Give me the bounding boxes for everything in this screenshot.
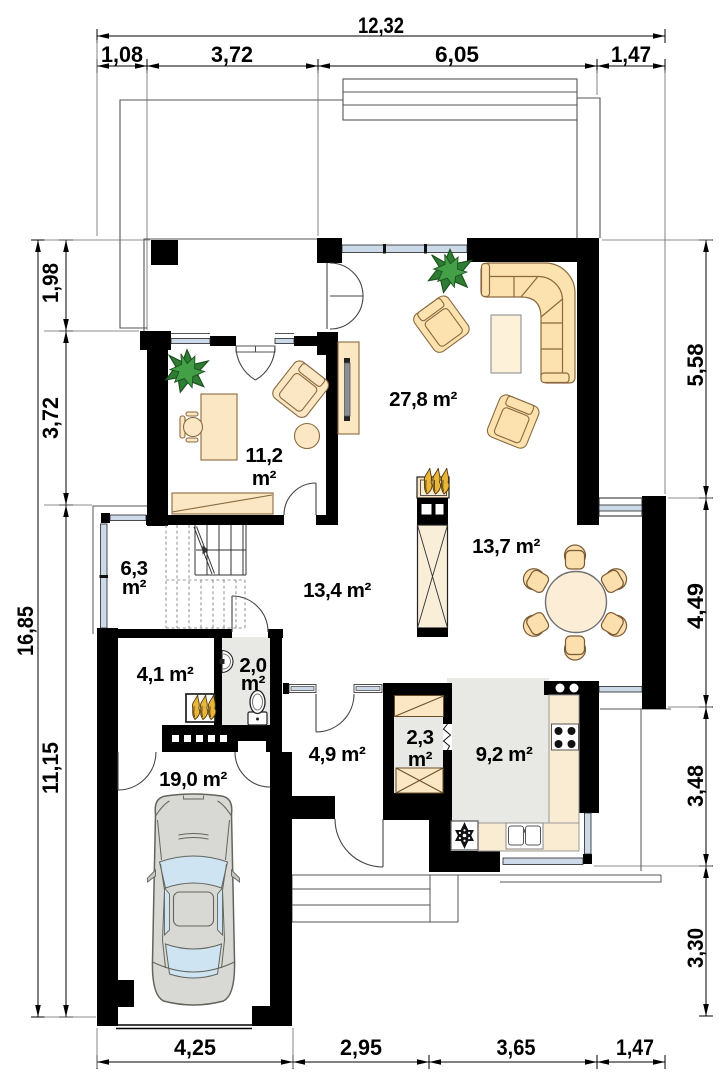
svg-text:m²: m² bbox=[408, 748, 433, 771]
svg-text:m²: m² bbox=[122, 576, 147, 599]
svg-text:4,49: 4,49 bbox=[683, 583, 708, 629]
svg-text:13,7 m²: 13,7 m² bbox=[472, 535, 540, 558]
svg-text:4,9 m²: 4,9 m² bbox=[309, 743, 366, 766]
svg-text:1,47: 1,47 bbox=[616, 1035, 654, 1060]
svg-text:19,0 m²: 19,0 m² bbox=[159, 768, 227, 791]
svg-text:13,4 m²: 13,4 m² bbox=[303, 579, 371, 602]
svg-text:2,95: 2,95 bbox=[340, 1035, 382, 1060]
svg-text:3,72: 3,72 bbox=[211, 42, 253, 67]
svg-text:m²: m² bbox=[241, 672, 266, 695]
svg-text:27,8 m²: 27,8 m² bbox=[389, 388, 457, 411]
svg-text:3,30: 3,30 bbox=[683, 928, 708, 968]
svg-text:9,2 m²: 9,2 m² bbox=[476, 743, 533, 766]
svg-text:4,25: 4,25 bbox=[174, 1035, 216, 1060]
svg-text:11,15: 11,15 bbox=[38, 742, 63, 794]
svg-text:3,65: 3,65 bbox=[497, 1035, 536, 1060]
svg-text:1,08: 1,08 bbox=[101, 42, 143, 67]
svg-text:11,2: 11,2 bbox=[245, 444, 282, 467]
svg-text:4,1 m²: 4,1 m² bbox=[137, 663, 194, 686]
svg-text:6,05: 6,05 bbox=[435, 42, 479, 67]
svg-text:3,48: 3,48 bbox=[683, 765, 708, 807]
svg-text:5,58: 5,58 bbox=[683, 344, 708, 387]
svg-text:16,85: 16,85 bbox=[13, 606, 38, 656]
svg-text:12,32: 12,32 bbox=[358, 13, 404, 38]
svg-text:3,72: 3,72 bbox=[38, 397, 63, 439]
svg-text:1,98: 1,98 bbox=[38, 263, 63, 303]
svg-text:2,3: 2,3 bbox=[406, 726, 433, 749]
svg-text:m²: m² bbox=[252, 467, 277, 490]
svg-text:1,47: 1,47 bbox=[611, 42, 651, 67]
